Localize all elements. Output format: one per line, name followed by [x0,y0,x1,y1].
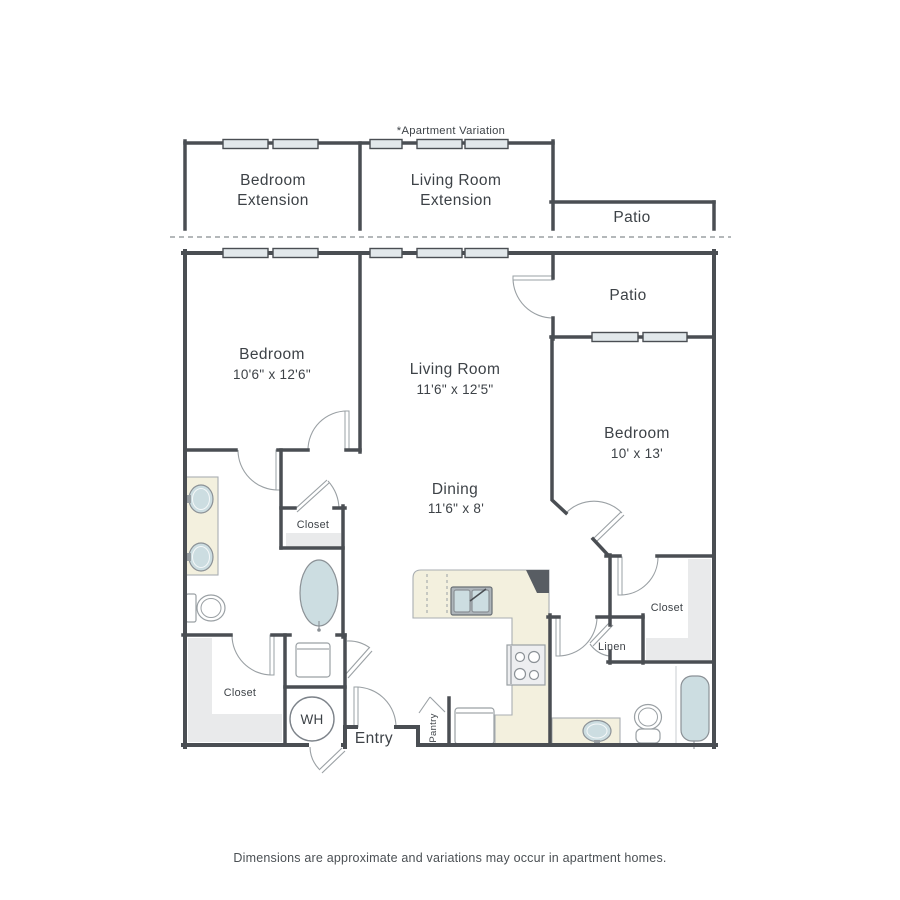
bedroom2-label: Bedroom [604,425,670,442]
stove [507,645,545,685]
entry-closet-label: Closet [224,687,256,699]
bath2-vanity [552,718,620,745]
living-extension-label-1: Living Room [411,172,502,189]
living-room-label: Living Room [410,361,501,378]
dining-label: Dining [432,481,478,498]
patio-label: Patio [609,287,646,304]
floor-plan-svg: *Apartment Variation Bedroom Extension L… [0,0,900,900]
dining-dims: 11'6" x 8' [428,501,484,516]
variation-patio-label: Patio [613,209,650,226]
entry-label: Entry [355,730,393,747]
variation-note: *Apartment Variation [397,125,505,137]
floor-plan-page: *Apartment Variation Bedroom Extension L… [0,0,900,900]
bedroom2-closet-label: Closet [651,602,683,614]
bath2-tub [681,676,709,749]
bedroom2-dims: 10' x 13' [611,446,663,461]
soaking-tub [300,560,338,632]
pantry-label: Pantry [428,713,439,742]
washer [296,643,330,677]
primary-toilet [186,594,225,622]
bedroom-extension-label-1: Bedroom [240,172,306,189]
bath2-toilet [635,705,662,744]
primary-bath-vanity [186,477,218,575]
bedroom-extension-label-2: Extension [237,192,309,209]
bedroom1-dims: 10'6" x 12'6" [233,367,311,382]
faucet-icon [187,495,191,503]
hall-closet-label: Closet [297,519,329,531]
living-extension-label-2: Extension [420,192,492,209]
water-heater-label: WH [300,712,323,727]
kitchen-sink [451,587,492,615]
bedroom1-label: Bedroom [239,346,305,363]
disclaimer-text: Dimensions are approximate and variation… [233,851,666,865]
main-plan: WH [183,249,716,774]
refrigerator [455,708,494,744]
room-labels: Bedroom 10'6" x 12'6" Living Room 11'6" … [224,287,683,747]
living-room-dims: 11'6" x 12'5" [417,382,494,397]
water-heater: WH [290,697,334,741]
linen-label: Linen [598,641,626,653]
faucet-icon [187,553,191,561]
variation-section: *Apartment Variation Bedroom Extension L… [185,125,714,229]
